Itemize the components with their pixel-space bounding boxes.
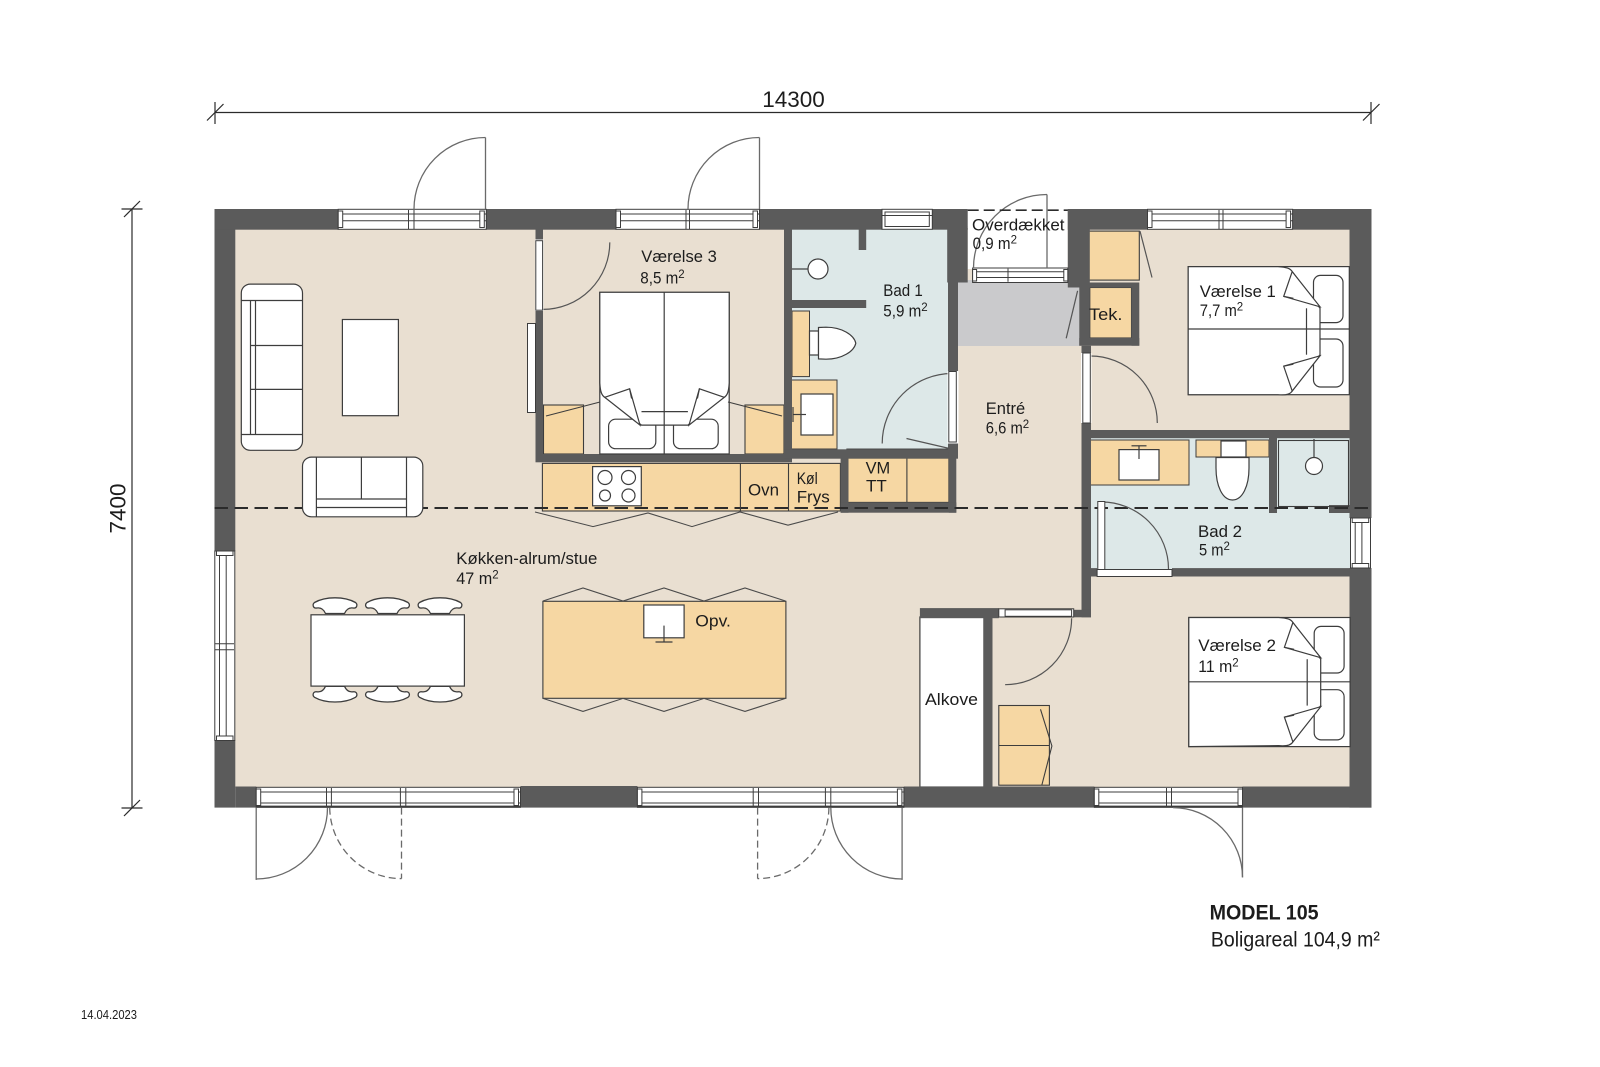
svg-text:Værelse 1: Værelse 1: [1200, 282, 1276, 301]
svg-text:Entré: Entré: [986, 399, 1025, 418]
svg-text:14300: 14300: [762, 87, 825, 112]
svg-text:6,6 m2: 6,6 m2: [986, 419, 1029, 438]
svg-text:7400: 7400: [106, 483, 131, 533]
svg-text:Ovn: Ovn: [748, 481, 779, 500]
svg-text:TT: TT: [866, 477, 887, 496]
svg-text:14.04.2023: 14.04.2023: [81, 1007, 137, 1022]
svg-text:MODEL 105: MODEL 105: [1210, 900, 1319, 924]
svg-text:Alkove: Alkove: [925, 690, 978, 709]
svg-text:Frys: Frys: [797, 488, 830, 507]
svg-text:0,9 m2: 0,9 m2: [973, 234, 1017, 253]
svg-text:8,5 m2: 8,5 m2: [640, 269, 684, 288]
svg-text:7,7 m2: 7,7 m2: [1200, 301, 1243, 320]
svg-text:Værelse 3: Værelse 3: [641, 247, 717, 266]
svg-text:Opv.: Opv.: [695, 612, 731, 631]
svg-text:Overdækket: Overdækket: [972, 216, 1065, 235]
svg-text:5,9 m2: 5,9 m2: [883, 302, 927, 321]
svg-text:Tek.: Tek.: [1089, 305, 1123, 324]
svg-text:Boligareal 104,9 m²: Boligareal 104,9 m²: [1211, 928, 1380, 952]
svg-text:Bad 2: Bad 2: [1198, 522, 1242, 541]
svg-text:VM: VM: [866, 459, 891, 478]
svg-text:Værelse 2: Værelse 2: [1198, 636, 1276, 655]
svg-text:Bad 1: Bad 1: [883, 281, 923, 300]
svg-text:Køl: Køl: [797, 469, 818, 488]
svg-text:Køkken-alrum/stue: Køkken-alrum/stue: [456, 549, 597, 568]
